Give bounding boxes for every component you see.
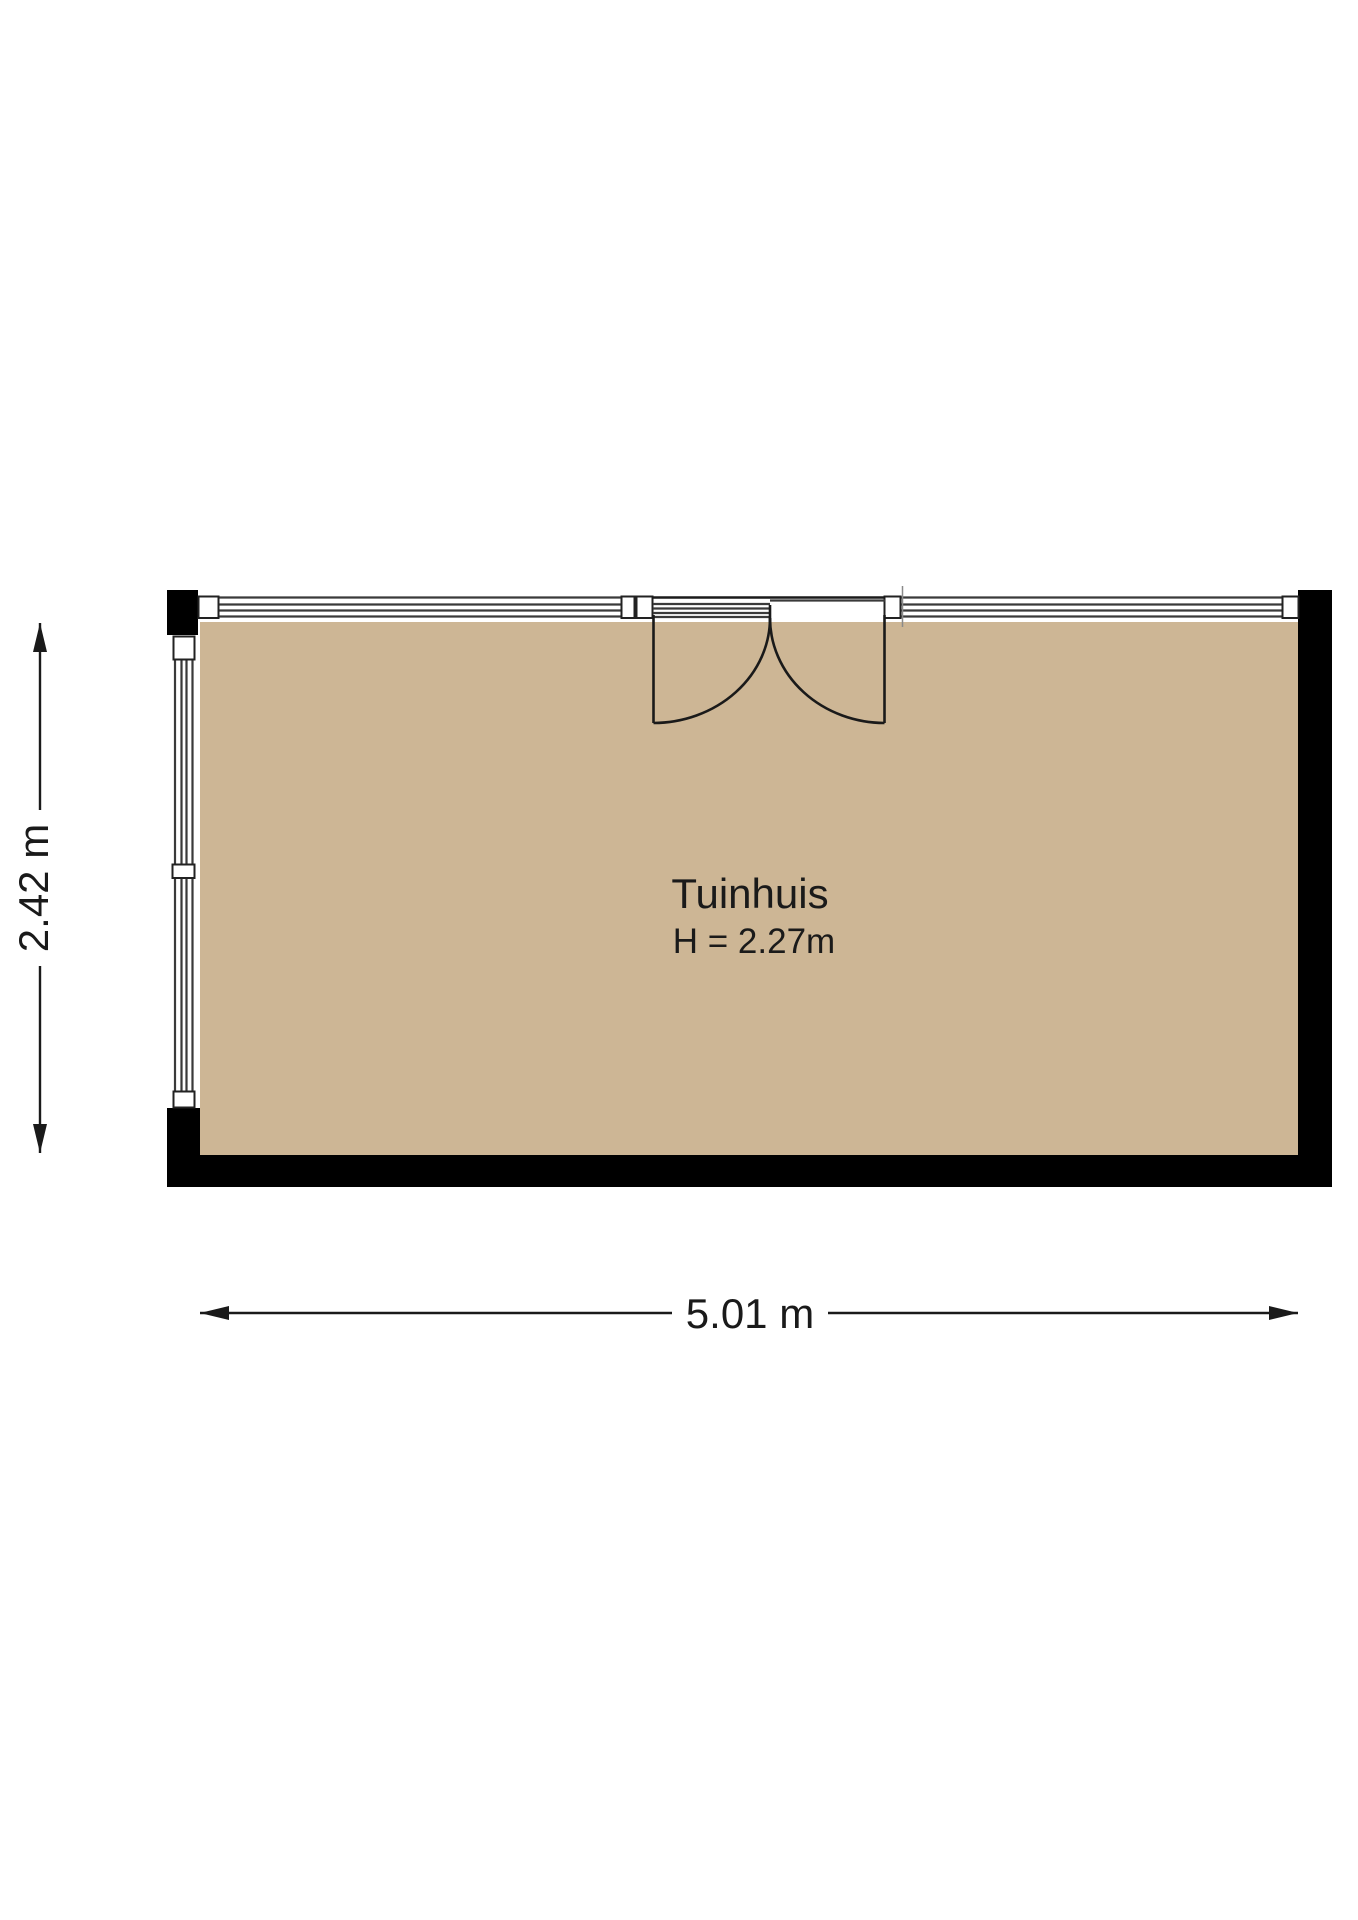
width-dimension-label: 5.01 m <box>686 1290 814 1337</box>
room-labels: Tuinhuis H = 2.27m <box>671 870 835 961</box>
window-frame-box <box>174 637 195 660</box>
window-frame-box <box>622 597 635 619</box>
window-frame-box <box>173 865 195 879</box>
window-frame-box <box>199 597 219 619</box>
window-frame-box <box>637 597 653 619</box>
depth-dimension-label: 2.42 m <box>10 824 57 952</box>
wall-bottom <box>167 1155 1332 1187</box>
room-height-label: H = 2.27m <box>673 922 835 961</box>
arrow-up-icon <box>33 623 47 652</box>
dimension-depth: 2.42 m <box>10 623 57 1153</box>
wall-post-bottom-left <box>167 1108 200 1187</box>
arrow-left-icon <box>200 1306 229 1320</box>
dimension-width: 5.01 m <box>200 1290 1298 1337</box>
wall-post-top-left <box>167 590 198 635</box>
window-frame-box <box>885 597 901 619</box>
window-top <box>198 586 1299 627</box>
window-frame-box <box>174 1092 195 1108</box>
window-left <box>173 637 195 1109</box>
arrow-right-icon <box>1269 1306 1298 1320</box>
wall-right <box>1298 590 1332 1187</box>
room-name-label: Tuinhuis <box>671 870 828 917</box>
arrow-down-icon <box>33 1124 47 1153</box>
floor-plan-canvas: 2.42 m 5.01 m Tuinhuis H = 2.27m <box>0 0 1358 1920</box>
window-frame-box <box>1283 597 1299 619</box>
